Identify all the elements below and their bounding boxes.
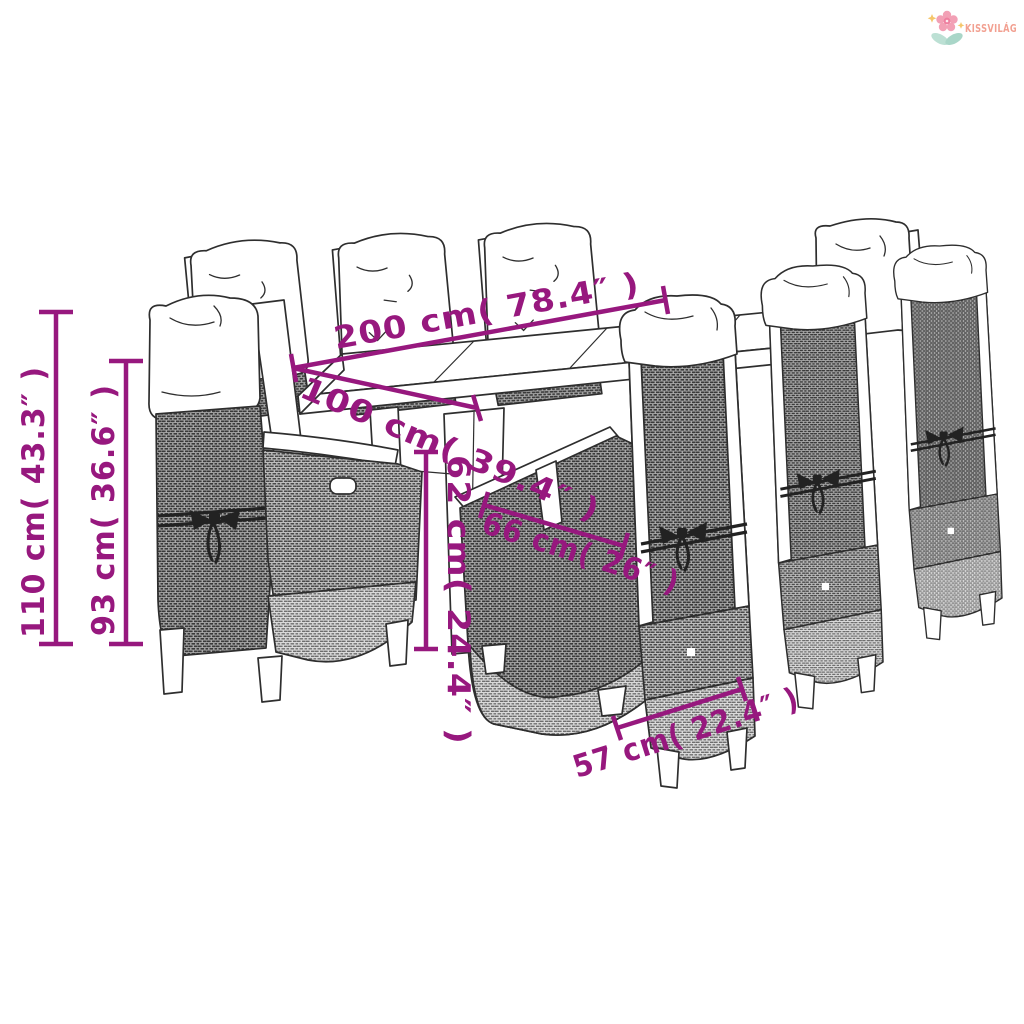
brand-name: KISSVILÁG bbox=[965, 22, 1017, 35]
front-row-chairs bbox=[620, 245, 1002, 788]
front-chair-3 bbox=[894, 245, 1002, 639]
brand-logo: KISSVILÁG bbox=[928, 11, 1017, 48]
furniture-illustration: 200 cm( 78.4″ ) 100 cm( 39.4″ ) 62 cm( 2… bbox=[0, 0, 1024, 1024]
front-chair-2 bbox=[761, 265, 883, 709]
dimension-chair-total-height: 110 cm( 43.3″ ) bbox=[16, 312, 73, 644]
dimension-chair-back-height: 93 cm( 36.6″ ) bbox=[86, 361, 143, 644]
label-chair-total-height: 110 cm( 43.3″ ) bbox=[16, 366, 52, 638]
dimension-table-clearance: 62 cm( 24.4″ ) bbox=[414, 452, 476, 745]
product-dimension-diagram: 200 cm( 78.4″ ) 100 cm( 39.4″ ) 62 cm( 2… bbox=[0, 0, 1024, 1024]
label-table-clearance: 62 cm( 24.4″ ) bbox=[440, 455, 476, 745]
flower-icon bbox=[928, 11, 965, 48]
label-chair-back-height: 93 cm( 36.6″ ) bbox=[86, 384, 122, 636]
